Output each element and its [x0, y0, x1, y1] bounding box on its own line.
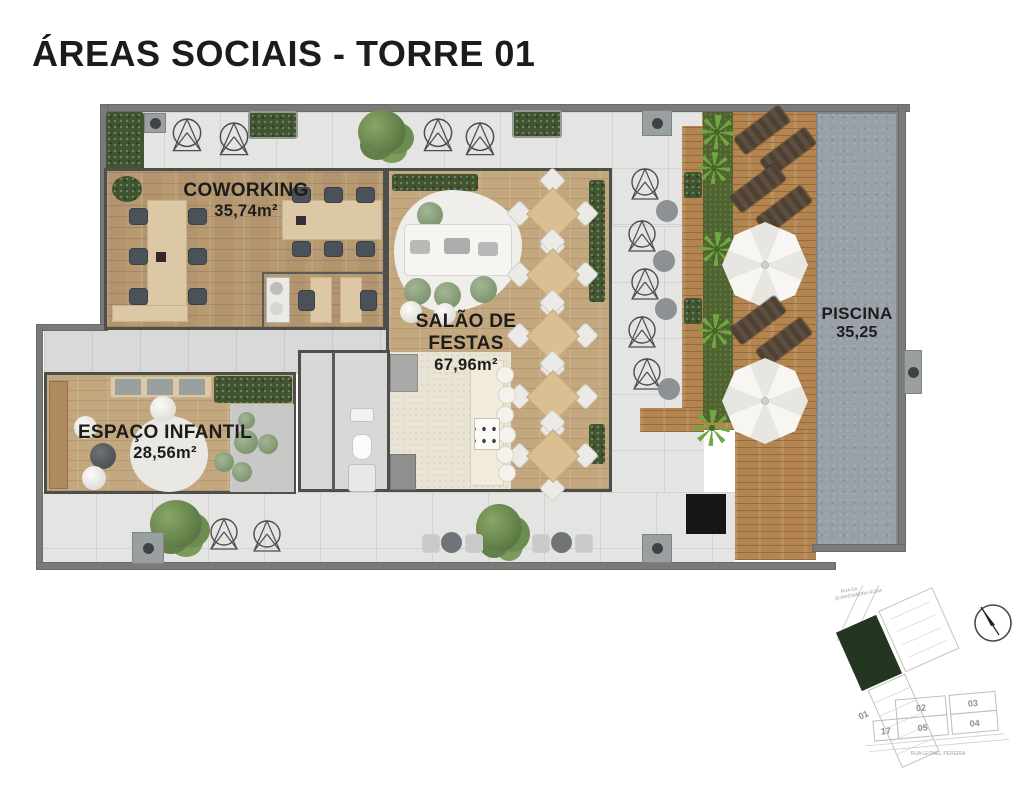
pool-deck-lower [735, 430, 816, 560]
terrace-planter-2 [512, 110, 562, 138]
palm-icon [698, 314, 732, 348]
infantil-name: ESPAÇO INFANTIL [74, 422, 256, 444]
bathroom [298, 350, 390, 492]
pouf [258, 434, 278, 454]
wall-left-lower [36, 324, 43, 569]
umbrella-hub [761, 261, 769, 269]
office-chair [298, 290, 315, 311]
office-chair [129, 288, 148, 305]
infantil-area: 28,56m² [74, 444, 256, 463]
palm-icon [694, 410, 730, 446]
tree-icon [358, 110, 406, 154]
terrace-chair [422, 534, 440, 553]
office-chair [356, 187, 375, 203]
pouf [150, 396, 176, 422]
coworking-label: COWORKING 35,74m² [160, 180, 332, 222]
office-chair [129, 248, 148, 265]
unit-17-label: 17 [880, 726, 891, 737]
fire-pit-icon [132, 532, 164, 564]
hanging-chair-icon [621, 314, 663, 354]
sink-icon [350, 408, 374, 422]
coworking-name: COWORKING [160, 180, 332, 202]
wall-pool-bottom [812, 544, 906, 552]
fire-pit-icon [642, 534, 672, 563]
hanging-chair-icon [624, 166, 666, 206]
toilet-icon [352, 434, 372, 460]
cubby [115, 379, 141, 395]
office-chair [188, 248, 207, 265]
unit-04-label: 04 [969, 718, 980, 729]
dining-table [526, 429, 580, 483]
bar-stool [498, 464, 516, 482]
palm-icon [698, 152, 730, 184]
office-chair [292, 241, 311, 257]
bench [49, 381, 68, 489]
terrace-planter-1 [248, 111, 298, 139]
bathroom-wall [332, 352, 335, 490]
salao-area: 67,96m² [380, 356, 552, 375]
round-table [551, 532, 572, 553]
wall-step [36, 324, 108, 331]
terrace-chair [532, 534, 550, 553]
credenza [112, 305, 188, 322]
sofa-cushion [444, 238, 470, 254]
hanging-chair-icon [203, 516, 245, 556]
infantil-hedge [214, 376, 292, 403]
sofa-cushion [478, 242, 498, 256]
round-table [441, 532, 462, 553]
floor-plan: COWORKING 35,74m² [0, 0, 1024, 600]
street-bottom-label: RUA LEONEL PEREIRA [911, 751, 966, 757]
piscina-label: PISCINA 35,25 [812, 304, 902, 343]
pool-equipment-box [904, 350, 922, 394]
piscina-name: PISCINA [812, 304, 902, 324]
focus-desk [340, 277, 362, 323]
side-table [658, 378, 680, 400]
coworking-area: 35,74m² [160, 202, 332, 221]
umbrella-hub [761, 397, 769, 405]
fire-pit-icon [642, 110, 672, 136]
pouf [470, 276, 497, 303]
pouf [82, 466, 106, 490]
pouf [232, 462, 252, 482]
basket-icon [270, 302, 283, 315]
terrace-hedge-left [106, 112, 144, 172]
laptop [156, 252, 166, 262]
coworking-plant [112, 176, 142, 202]
unit-01-label: 01 [857, 708, 870, 721]
salao-name: SALÃO DE FESTAS [380, 311, 552, 356]
shower-icon [348, 464, 376, 492]
kitchen-cabinet [390, 454, 416, 490]
office-chair [324, 241, 343, 257]
grill-box [144, 113, 166, 133]
umbrella-icon [722, 222, 808, 308]
umbrella-icon [722, 358, 808, 444]
lounge-daybed [686, 494, 726, 534]
hanging-chair-icon [458, 120, 502, 162]
infantil-label: ESPAÇO INFANTIL 28,56m² [74, 422, 256, 464]
site-plan: RUA DA QUARESMEIRA ROXA 01 02 [833, 583, 1023, 773]
piscina-area: 35,25 [812, 324, 902, 343]
cubby [179, 379, 205, 395]
wall-top [100, 104, 910, 112]
salao-planter-top [392, 174, 478, 191]
compass-icon [975, 605, 1011, 641]
hanging-chair-icon [416, 116, 460, 158]
palm-icon [700, 115, 734, 149]
dining-set [508, 411, 596, 499]
terrace-chair [465, 534, 483, 553]
office-chair [129, 208, 148, 225]
office-chair [360, 290, 377, 311]
boardwalk-hedge-2 [684, 298, 702, 324]
salao-label: SALÃO DE FESTAS 67,96m² [380, 311, 552, 375]
hanging-chair-icon [246, 518, 288, 558]
sink-icon [270, 282, 283, 295]
terrace-chair [575, 534, 593, 553]
sofa-cushion [410, 240, 430, 254]
office-chair [356, 241, 375, 257]
stove-icon [474, 418, 500, 450]
unit-05-label: 05 [917, 722, 928, 733]
unit-02-label: 02 [916, 702, 927, 713]
bar-stool [498, 426, 516, 444]
cubby [147, 379, 173, 395]
hanging-chair-icon [165, 116, 209, 158]
bar-stool [498, 386, 516, 404]
unit-03-label: 03 [967, 698, 978, 709]
office-chair [188, 288, 207, 305]
page: ÁREAS SOCIAIS - TORRE 01 [0, 0, 1024, 787]
